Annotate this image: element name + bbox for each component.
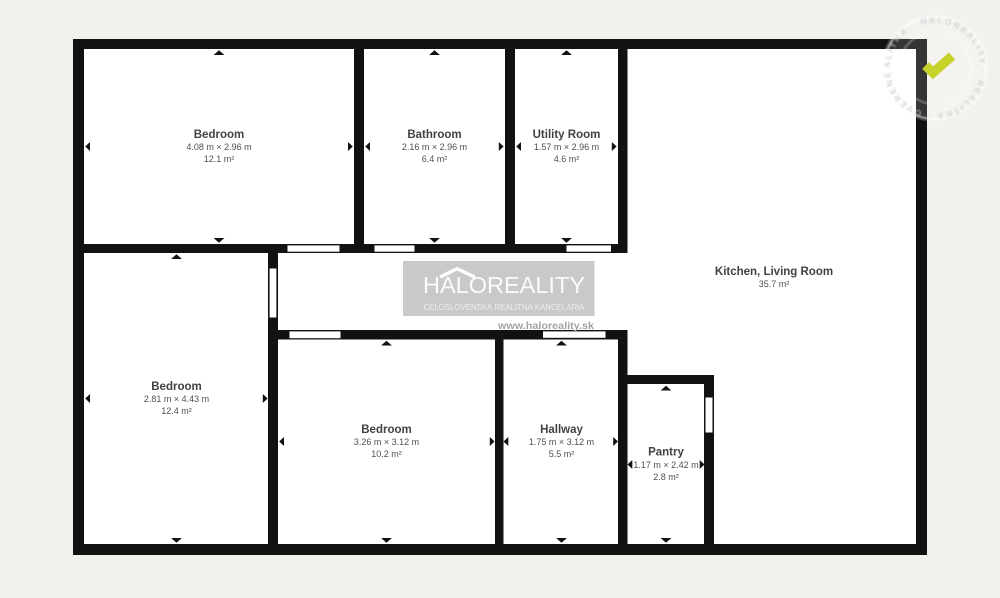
- svg-text:www.haloreality.sk: www.haloreality.sk: [497, 320, 594, 332]
- svg-text:Kitchen, Living Room: Kitchen, Living Room: [715, 266, 833, 278]
- svg-text:Bathroom: Bathroom: [407, 129, 461, 141]
- svg-text:Bedroom: Bedroom: [151, 381, 201, 393]
- svg-text:Utility Room: Utility Room: [533, 129, 601, 141]
- svg-text:6.4 m²: 6.4 m²: [422, 154, 448, 164]
- svg-text:Hallway: Hallway: [540, 424, 583, 436]
- svg-text:12.1 m²: 12.1 m²: [204, 154, 235, 164]
- svg-text:4.6 m²: 4.6 m²: [554, 154, 580, 164]
- svg-text:2.81 m × 4.43 m: 2.81 m × 4.43 m: [144, 394, 209, 404]
- svg-text:3.26 m × 3.12 m: 3.26 m × 3.12 m: [354, 437, 419, 447]
- svg-text:1.75 m × 3.12 m: 1.75 m × 3.12 m: [529, 437, 594, 447]
- svg-text:Pantry: Pantry: [648, 447, 684, 459]
- svg-text:2.16 m × 2.96 m: 2.16 m × 2.96 m: [402, 142, 467, 152]
- svg-text:Bedroom: Bedroom: [194, 129, 244, 141]
- svg-text:HALOREALITY: HALOREALITY: [423, 272, 585, 298]
- svg-text:35.7 m²: 35.7 m²: [759, 279, 790, 289]
- svg-text:1.17 m × 2.42 m: 1.17 m × 2.42 m: [633, 460, 698, 470]
- svg-text:Bedroom: Bedroom: [361, 424, 411, 436]
- svg-text:CELOSLOVENSKÁ REALITNÁ KANCELÁ: CELOSLOVENSKÁ REALITNÁ KANCELÁRIA: [424, 302, 585, 312]
- svg-text:10.2 m²: 10.2 m²: [371, 449, 402, 459]
- svg-text:4.08 m × 2.96 m: 4.08 m × 2.96 m: [186, 142, 251, 152]
- svg-text:1.57 m × 2.96 m: 1.57 m × 2.96 m: [534, 142, 599, 152]
- svg-text:5.5 m²: 5.5 m²: [549, 449, 575, 459]
- svg-text:12.4 m²: 12.4 m²: [161, 406, 192, 416]
- svg-text:2.8 m²: 2.8 m²: [653, 472, 679, 482]
